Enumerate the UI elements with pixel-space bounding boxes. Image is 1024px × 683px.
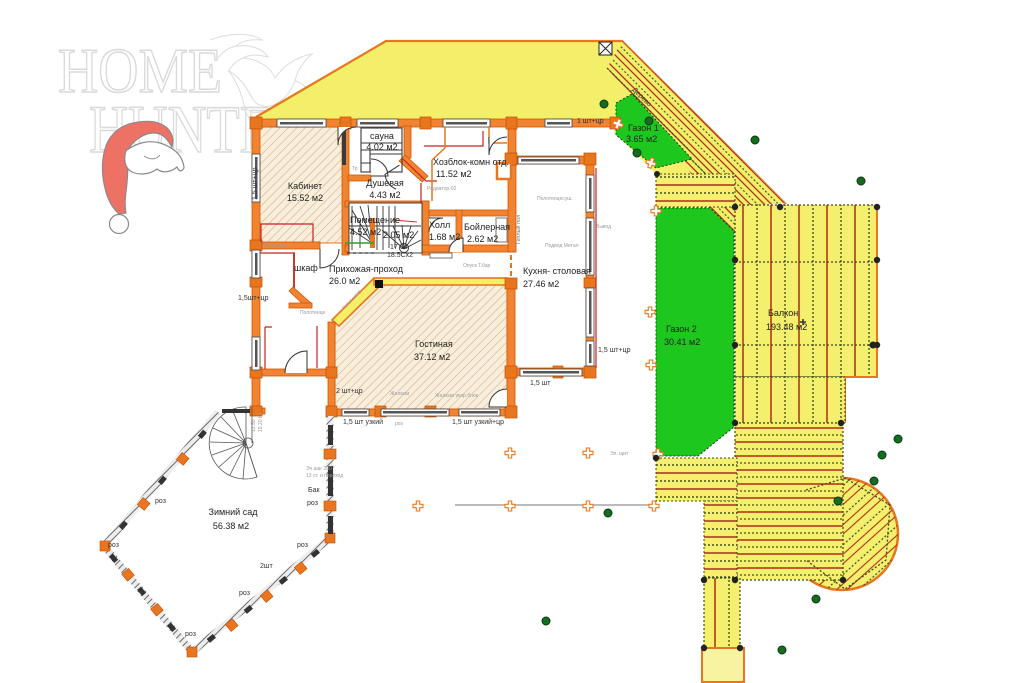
svg-text:роз: роз <box>155 498 166 505</box>
svg-text:30.41 м2: 30.41 м2 <box>664 337 700 347</box>
svg-text:3.65 м2: 3.65 м2 <box>626 134 657 144</box>
svg-text:1,5 шт: 1,5 шт <box>530 380 551 387</box>
svg-text:Зимний сад: Зимний сад <box>209 507 259 517</box>
svg-text:роз: роз <box>239 590 250 597</box>
svg-text:Гостиная: Гостиная <box>415 339 453 349</box>
svg-text:Опуск Т.бар: Опуск Т.бар <box>463 263 491 269</box>
svg-text:Холл: Холл <box>429 220 450 230</box>
svg-text:37.12 м2: 37.12 м2 <box>414 352 450 362</box>
svg-text:роз: роз <box>185 631 196 638</box>
svg-text:1,5 шт+цр: 1,5 шт+цр <box>252 167 259 200</box>
svg-text:1.68 м2: 1.68 м2 <box>429 232 460 242</box>
svg-text:роз: роз <box>307 500 318 507</box>
svg-text:11.52 м2: 11.52 м2 <box>436 169 472 179</box>
svg-text:Тр: Тр <box>352 166 358 172</box>
svg-text:Кабинет: Кабинет <box>288 181 322 191</box>
svg-text:12.50: 12.50 <box>251 419 257 432</box>
svg-text:18.5Сх2: 18.5Сх2 <box>387 252 413 259</box>
svg-text:1,5 шт+цр: 1,5 шт+цр <box>598 347 631 354</box>
svg-text:2.62 м2: 2.62 м2 <box>467 234 498 244</box>
svg-text:17 Ст.: 17 Ст. <box>390 244 409 251</box>
svg-text:1,5 шт узкий+цр: 1,5 шт узкий+цр <box>452 418 504 426</box>
svg-text:1 шт+цр: 1 шт+цр <box>577 118 604 125</box>
svg-text:Кухня- столовая: Кухня- столовая <box>523 266 591 276</box>
svg-text:56.38 м2: 56.38 м2 <box>213 521 249 531</box>
svg-text:15.52 м2: 15.52 м2 <box>287 193 323 203</box>
svg-text:Прихожая-проход: Прихожая-проход <box>329 264 404 274</box>
svg-text:Тёплый пол: Тёплый пол <box>515 215 522 245</box>
svg-text:4.43 м2: 4.43 м2 <box>369 190 400 200</box>
svg-text:13 ст. и переход: 13 ст. и переход <box>306 473 343 479</box>
svg-text:2шт: 2шт <box>260 563 274 570</box>
svg-text:19.20 t.1: 19.20 t.1 <box>258 412 264 432</box>
svg-text:роз: роз <box>108 542 119 549</box>
svg-text:Полотенце: Полотенце <box>300 310 325 316</box>
svg-text:Вывод: Вывод <box>596 224 611 230</box>
svg-text:2.05 м2: 2.05 м2 <box>383 230 414 240</box>
svg-text:2 шт+цр: 2 шт+цр <box>336 388 363 395</box>
svg-text:1,5шт+цр: 1,5шт+цр <box>238 295 269 302</box>
svg-text:Душевая: Душевая <box>366 178 404 188</box>
svg-text:Жалюзи: Жалюзи <box>390 391 409 397</box>
svg-text:Полотенцесуш.: Полотенцесуш. <box>537 196 573 202</box>
svg-text:Эч шаг 200: Эч шаг 200 <box>306 466 332 472</box>
svg-text:27.46 м2: 27.46 м2 <box>523 279 559 289</box>
svg-text:шкаф: шкаф <box>294 263 318 273</box>
svg-text:Антресоль: Антресоль <box>262 243 287 249</box>
svg-text:4.02 м2: 4.02 м2 <box>366 142 397 152</box>
svg-text:Подвод Метал: Подвод Метал <box>545 243 579 249</box>
svg-text:4.52 м2: 4.52 м2 <box>350 227 381 237</box>
svg-text:Газон 2: Газон 2 <box>666 324 697 334</box>
svg-text:Хозблок-комн отд.: Хозблок-комн отд. <box>433 157 509 167</box>
svg-text:сауна: сауна <box>370 131 394 141</box>
svg-text:Эл. щит: Эл. щит <box>610 451 629 457</box>
svg-text:Балкон: Балкон <box>768 308 798 318</box>
svg-text:26.0 м2: 26.0 м2 <box>329 276 360 286</box>
svg-text:роз: роз <box>395 421 404 427</box>
svg-text:Помещение: Помещение <box>350 215 400 225</box>
svg-text:Жалюзи укор.блок: Жалюзи укор.блок <box>435 393 479 399</box>
svg-text:Бойлерная: Бойлерная <box>464 222 510 232</box>
svg-text:193.48 м2: 193.48 м2 <box>766 322 807 332</box>
svg-text:1,5 шт узкий: 1,5 шт узкий <box>343 418 383 426</box>
svg-text:Бак: Бак <box>308 487 320 494</box>
svg-text:Газон 1: Газон 1 <box>628 123 659 133</box>
svg-text:Радиатор-02: Радиатор-02 <box>427 186 457 192</box>
svg-text:роз: роз <box>297 542 308 549</box>
